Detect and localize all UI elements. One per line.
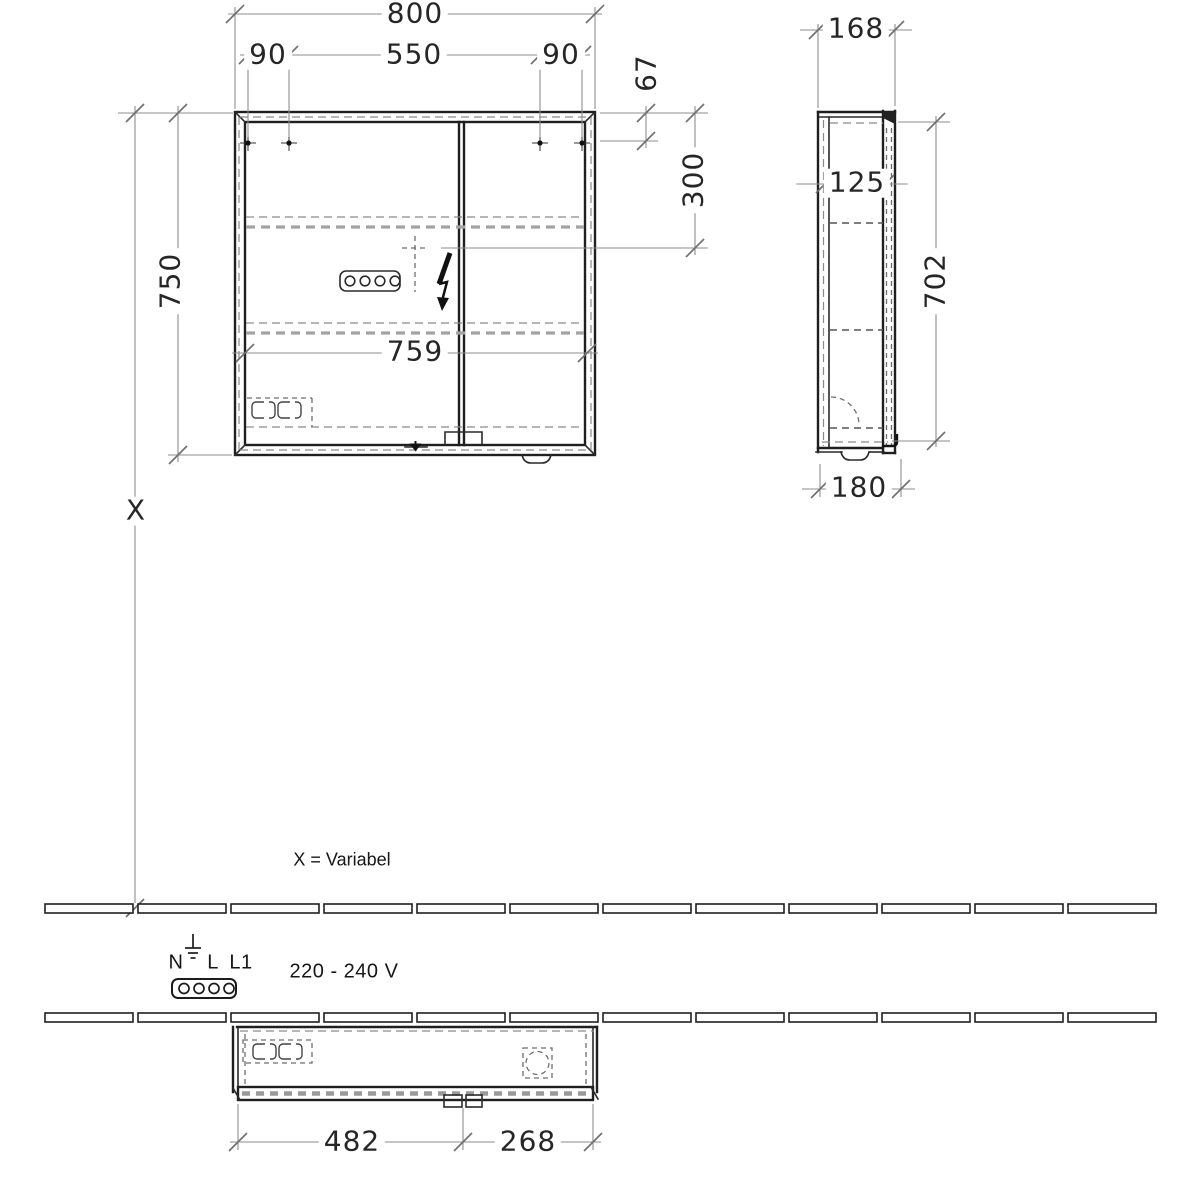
terminal-label-n: N (169, 952, 184, 975)
dim-label-759: 759 (382, 338, 448, 367)
wall-hatch-lower (45, 1013, 1156, 1022)
side-view-cabinet (816, 111, 897, 460)
technical-drawing-canvas: 800 90 550 90 67 300 750 759 X 168 125 7… (0, 0, 1200, 1200)
dim-label-90-right: 90 (537, 41, 585, 70)
light-module-bottom (523, 1048, 552, 1078)
bottom-switch-bump-front (522, 455, 551, 463)
terminal-label-l1: L1 (229, 952, 252, 975)
dim-label-550: 550 (381, 41, 447, 70)
dim-label-125: 125 (824, 169, 890, 198)
socket-module-front (247, 398, 312, 427)
terminal-label-l: L (207, 952, 219, 975)
bottom-view-cabinet (233, 1027, 598, 1107)
dim-label-750: 750 (157, 248, 186, 314)
terminal-block-icon-legend (172, 979, 236, 998)
dim-label-168: 168 (823, 15, 889, 44)
voltage-label: 220 - 240 V (290, 961, 399, 984)
socket-module-bottom (243, 1040, 312, 1063)
door-swing-arc (831, 397, 859, 425)
dim-label-180: 180 (826, 474, 892, 503)
dim-label-300: 300 (680, 147, 709, 213)
front-view-cabinet (235, 112, 595, 463)
wall-hatch-upper (45, 904, 1156, 913)
earth-ground-icon (185, 934, 201, 958)
bevel-top-right (585, 112, 595, 122)
dim-label-90-left: 90 (244, 41, 292, 70)
dim-label-x: X (121, 497, 151, 526)
dim-label-800: 800 (382, 0, 448, 28)
mounting-holes (240, 135, 590, 151)
dim-label-67: 67 (633, 49, 662, 97)
dim-label-702: 702 (922, 248, 951, 314)
bevel-bottom-right (585, 445, 595, 455)
dim-label-268: 268 (495, 1128, 561, 1157)
outlet-position-crosshair (402, 236, 429, 292)
front-view-dimensions (118, 5, 708, 917)
terminal-block-icon (340, 271, 400, 291)
bottom-switch-bump-side (841, 452, 869, 460)
lightning-bolt-icon (437, 253, 450, 311)
variable-note: X = Variabel (293, 850, 390, 871)
drawing-linework (0, 0, 1200, 1200)
dim-label-482: 482 (319, 1128, 385, 1157)
